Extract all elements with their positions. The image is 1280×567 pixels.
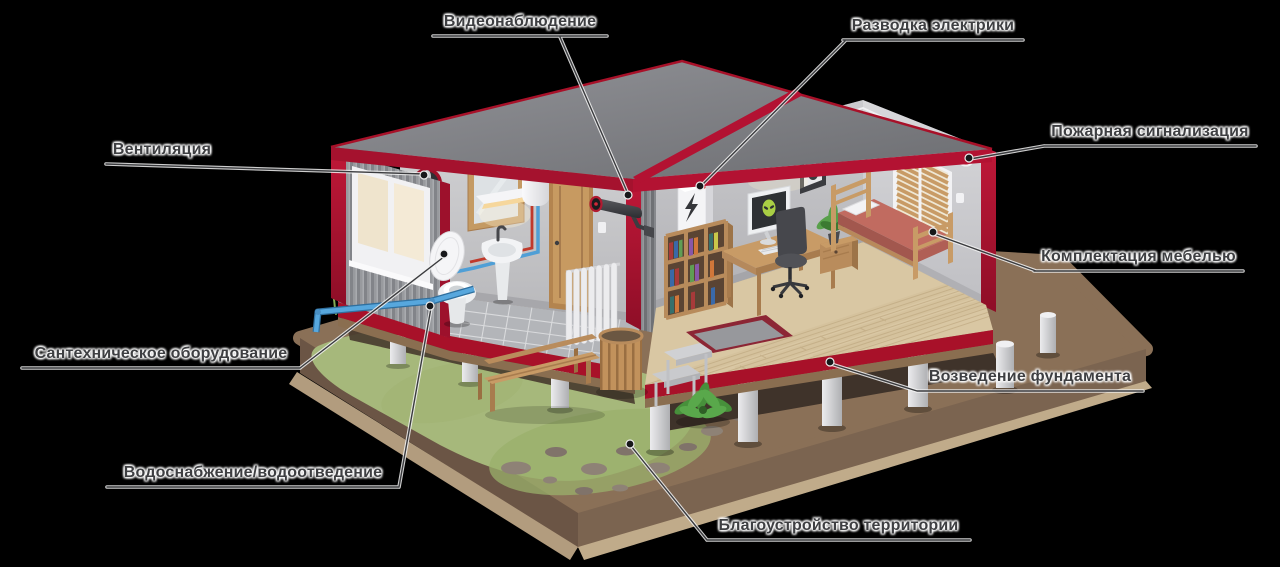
dot-fire-alarm: [965, 154, 973, 162]
alien-logo-icon: [763, 200, 776, 217]
planter-barrel: [596, 329, 648, 399]
label-furniture: Комплектация мебелью: [1034, 248, 1243, 266]
label-water-supply: Водоснабжение/водоотведение: [107, 464, 399, 482]
window-switch: [956, 193, 964, 203]
infographic-canvas: Видеонаблюдение Разводка электрики Венти…: [0, 0, 1280, 567]
dot-foundation: [826, 358, 834, 366]
label-plumbing: Сантехническое оборудование: [22, 345, 300, 363]
light-switch: [598, 222, 606, 233]
dot-water-supply: [426, 302, 434, 310]
label-video-surveillance: Видеонаблюдение: [433, 13, 607, 31]
dot-electrical-wiring: [696, 182, 704, 190]
label-landscaping: Благоустройство территории: [707, 517, 970, 535]
label-ventilation: Вентиляция: [106, 141, 218, 159]
dot-ventilation: [420, 171, 428, 179]
dot-plumbing: [440, 250, 448, 258]
label-electrical-wiring: Разводка электрики: [843, 17, 1023, 35]
label-foundation: Возведение фундамента: [917, 368, 1143, 386]
corner-post: [981, 146, 996, 312]
label-fire-alarm: Пожарная сигнализация: [1044, 123, 1256, 141]
dot-landscaping: [626, 440, 634, 448]
dot-video-surveillance: [624, 191, 632, 199]
bookshelf: [666, 221, 733, 318]
dot-furniture: [929, 228, 937, 236]
